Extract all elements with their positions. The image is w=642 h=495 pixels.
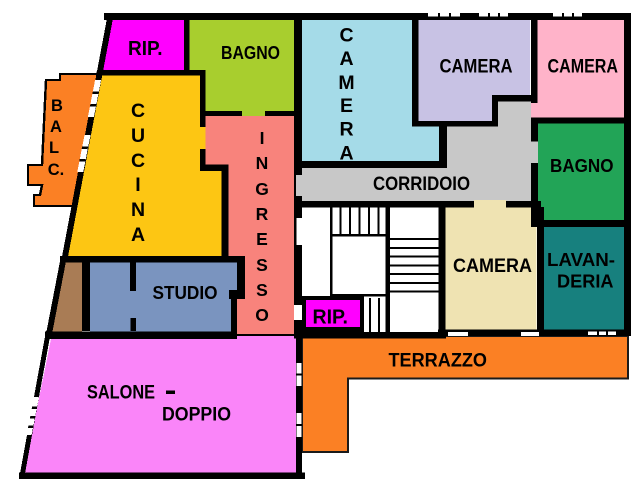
svg-text:U: U bbox=[131, 125, 145, 147]
svg-text:E: E bbox=[256, 229, 268, 249]
svg-text:R: R bbox=[256, 204, 269, 224]
svg-text:N: N bbox=[131, 199, 145, 221]
svg-text:I: I bbox=[260, 128, 265, 148]
svg-text:O: O bbox=[255, 305, 269, 325]
svg-text:I: I bbox=[135, 174, 140, 196]
svg-text:BAGNO: BAGNO bbox=[221, 43, 280, 63]
svg-text:E: E bbox=[340, 95, 353, 117]
svg-text:N: N bbox=[256, 153, 269, 173]
svg-text:BAGNO: BAGNO bbox=[550, 156, 614, 176]
svg-text:A: A bbox=[131, 224, 145, 246]
svg-text:STUDIO: STUDIO bbox=[153, 282, 218, 303]
svg-text:R: R bbox=[339, 119, 353, 141]
svg-text:TERRAZZO: TERRAZZO bbox=[389, 350, 488, 372]
svg-text:LAVAN-: LAVAN- bbox=[547, 250, 615, 270]
svg-text:C: C bbox=[131, 100, 145, 122]
svg-text:SALONE: SALONE bbox=[87, 382, 155, 404]
svg-text:C: C bbox=[131, 150, 145, 172]
svg-text:G: G bbox=[255, 179, 269, 199]
svg-text:CAMERA: CAMERA bbox=[548, 57, 619, 78]
svg-text:A: A bbox=[339, 48, 353, 70]
svg-text:CORRIDOIO: CORRIDOIO bbox=[373, 174, 470, 195]
svg-text:C: C bbox=[339, 25, 353, 47]
svg-text:S: S bbox=[256, 280, 268, 300]
svg-text:CAMERA: CAMERA bbox=[440, 57, 513, 78]
svg-text:M: M bbox=[338, 72, 354, 94]
svg-text:C.: C. bbox=[48, 161, 65, 179]
svg-text:A: A bbox=[50, 118, 62, 136]
svg-text:S: S bbox=[256, 255, 268, 275]
svg-text:RIP.: RIP. bbox=[128, 38, 163, 60]
svg-text:DERIA: DERIA bbox=[557, 272, 614, 292]
svg-text:DOPPIO: DOPPIO bbox=[162, 404, 231, 426]
svg-text:B: B bbox=[51, 97, 63, 115]
svg-text:CAMERA: CAMERA bbox=[453, 256, 532, 277]
svg-text:L: L bbox=[49, 139, 59, 157]
svg-text:RIP.: RIP. bbox=[313, 307, 349, 329]
